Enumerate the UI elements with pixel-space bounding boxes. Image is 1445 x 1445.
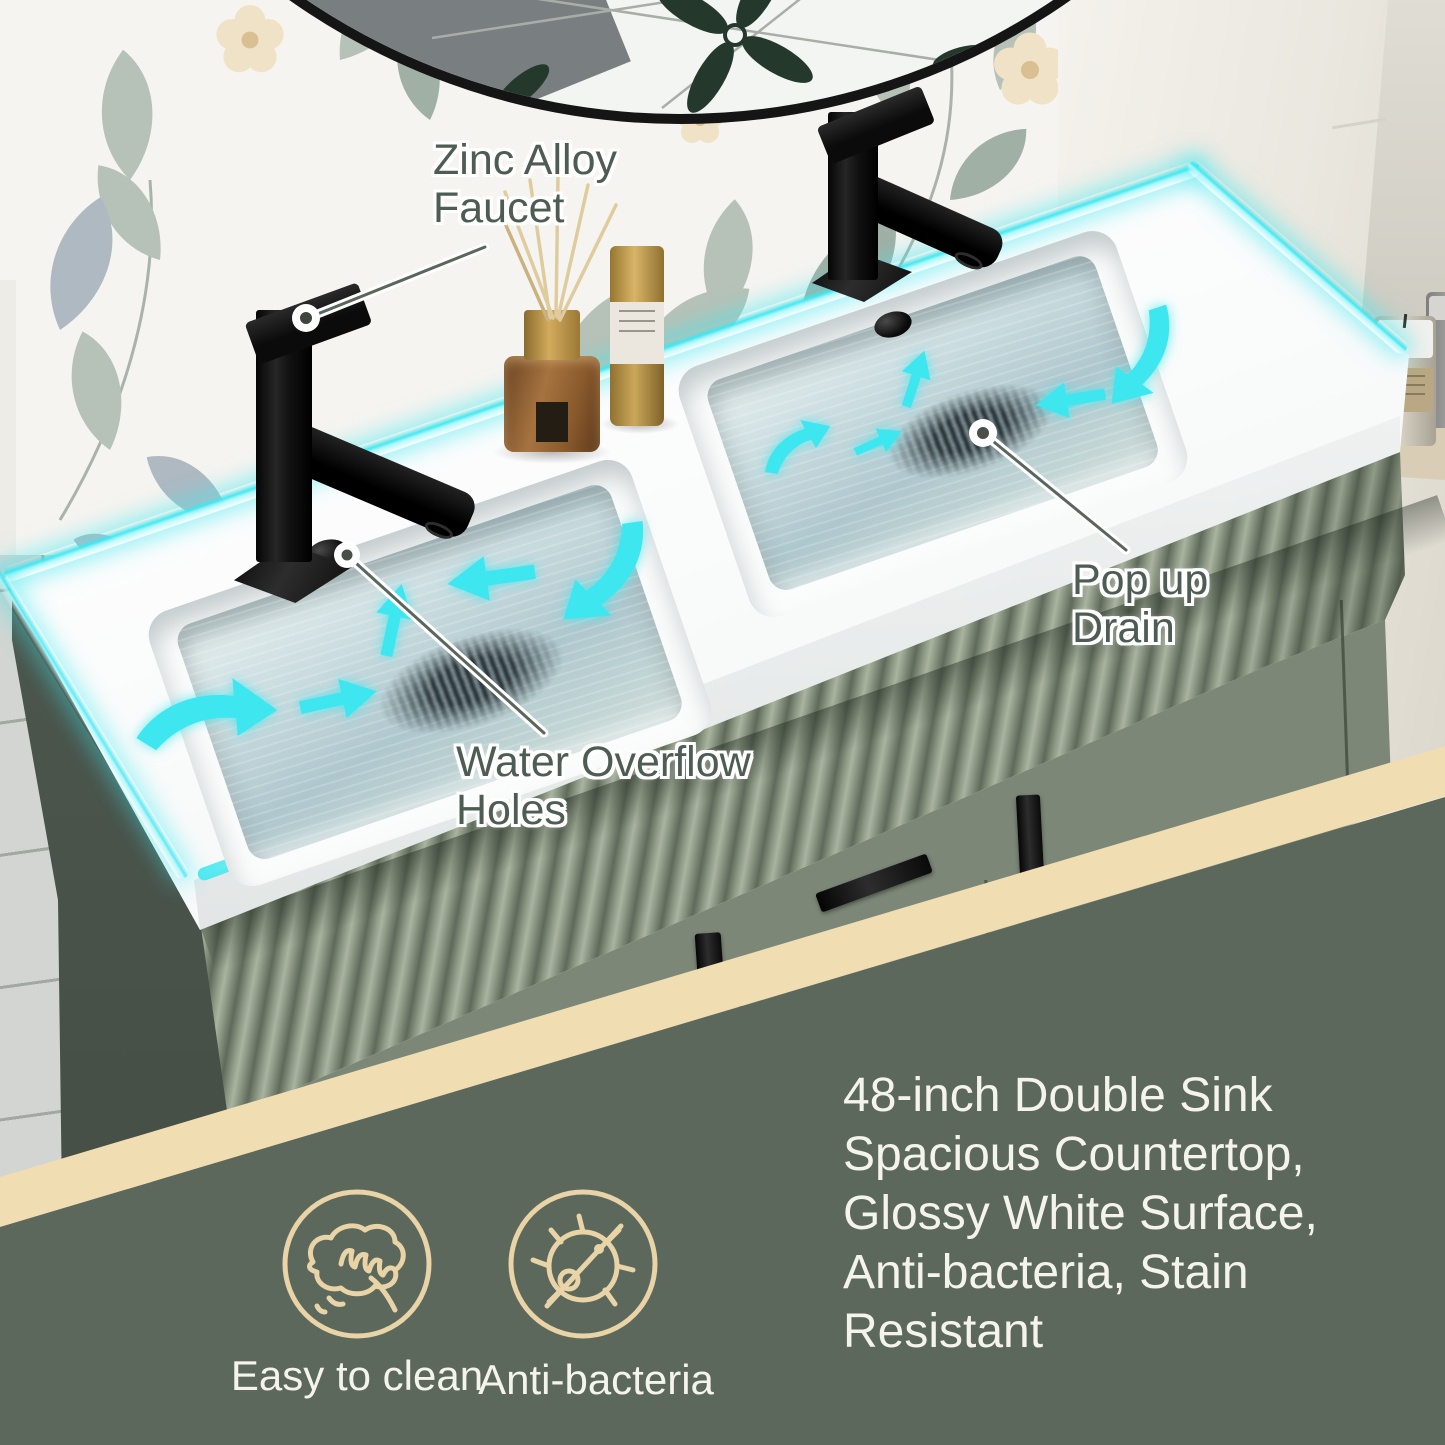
water-flow-arrow (444, 549, 538, 606)
callout-label-overflow: Water Overflow Holes (456, 738, 751, 834)
description-line: Resistant (843, 1302, 1443, 1361)
water-flow-arrows (135, 299, 1204, 769)
hand-wipe-icon (277, 1186, 437, 1346)
description-line: Spacious Countertop, (843, 1125, 1443, 1184)
callout-text: Pop up (1072, 556, 1208, 604)
callout-label-drain: Pop up Drain (1072, 556, 1208, 652)
anti-bacteria-icon (503, 1186, 663, 1346)
feature-label: Anti-bacteria (466, 1356, 726, 1404)
description-line: Anti-bacteria, Stain (843, 1243, 1443, 1302)
product-description: 48-inch Double Sink Spacious Countertop,… (843, 1066, 1443, 1361)
water-flow-arrow (135, 663, 282, 769)
water-flow-arrow (537, 514, 676, 637)
callout-text: Faucet (433, 184, 617, 232)
feature-label: Easy to clean (227, 1352, 487, 1400)
callout-text: Water Overflow (456, 738, 751, 786)
callout-text: Holes (456, 786, 751, 834)
easy-clean-badge (277, 1186, 437, 1351)
callout-text: Zinc Alloy (433, 136, 617, 184)
anti-bacteria-badge (503, 1186, 663, 1351)
water-flow-arrow (892, 346, 939, 411)
water-flow-arrow (850, 419, 907, 463)
description-line: Glossy White Surface, (843, 1184, 1443, 1243)
callout-label-faucet: Zinc Alloy Faucet (433, 136, 617, 232)
callout-lines (292, 247, 1126, 733)
water-flow-arrow (755, 413, 839, 476)
description-line: 48-inch Double Sink (843, 1066, 1443, 1125)
water-flow-arrow (296, 672, 381, 727)
callout-text: Drain (1072, 604, 1208, 652)
product-hero-image: Zinc Alloy Faucet Pop up Drain Water Ove… (0, 0, 1445, 1445)
water-flow-arrow (1033, 376, 1108, 423)
